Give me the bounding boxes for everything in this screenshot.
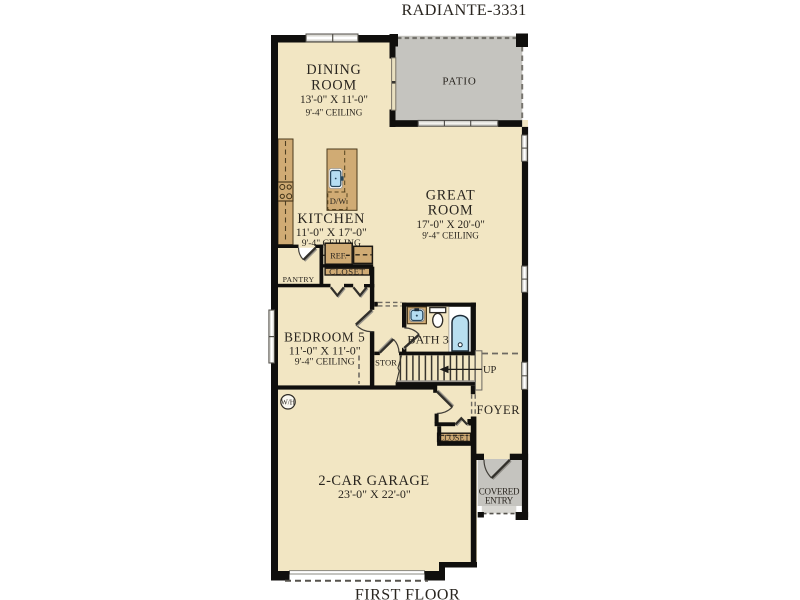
svg-text:W/H: W/H xyxy=(281,399,295,407)
svg-text:RADIANTE-3331: RADIANTE-3331 xyxy=(401,0,526,19)
svg-text:ROOM: ROOM xyxy=(428,202,474,218)
svg-text:CLOSET: CLOSET xyxy=(439,433,470,442)
svg-text:BATH 3: BATH 3 xyxy=(407,332,449,346)
svg-text:CLOSET: CLOSET xyxy=(329,267,365,277)
svg-text:13'-0" X 11'-0": 13'-0" X 11'-0" xyxy=(300,94,368,106)
svg-text:FOYER: FOYER xyxy=(477,403,521,417)
svg-text:17'-0" X 20'-0": 17'-0" X 20'-0" xyxy=(416,219,485,231)
svg-text:FIRST FLOOR: FIRST FLOOR xyxy=(355,586,460,600)
svg-text:23'-0" X 22'-0": 23'-0" X 22'-0" xyxy=(338,487,411,501)
svg-text:9'-4" CEILING: 9'-4" CEILING xyxy=(295,357,355,368)
svg-text:11'-0" X 17'-0": 11'-0" X 17'-0" xyxy=(296,225,367,239)
svg-text:11'-0" X 11'-0": 11'-0" X 11'-0" xyxy=(289,343,361,357)
svg-text:GREAT: GREAT xyxy=(426,188,476,204)
svg-text:D/W: D/W xyxy=(330,196,347,206)
svg-text:REF.: REF. xyxy=(330,251,346,260)
svg-text:STOR: STOR xyxy=(375,358,397,368)
svg-text:ENTRY: ENTRY xyxy=(485,495,514,505)
svg-text:UP: UP xyxy=(483,365,497,376)
svg-text:PANTRY: PANTRY xyxy=(283,275,315,284)
svg-text:DINING: DINING xyxy=(306,62,361,78)
svg-text:9'-4" CEILING: 9'-4" CEILING xyxy=(422,230,479,240)
svg-text:ROOM: ROOM xyxy=(311,78,357,94)
svg-text:PATIO: PATIO xyxy=(442,75,476,87)
svg-text:BEDROOM 5: BEDROOM 5 xyxy=(284,329,365,344)
svg-text:9'-4" CEILING: 9'-4" CEILING xyxy=(306,108,363,118)
